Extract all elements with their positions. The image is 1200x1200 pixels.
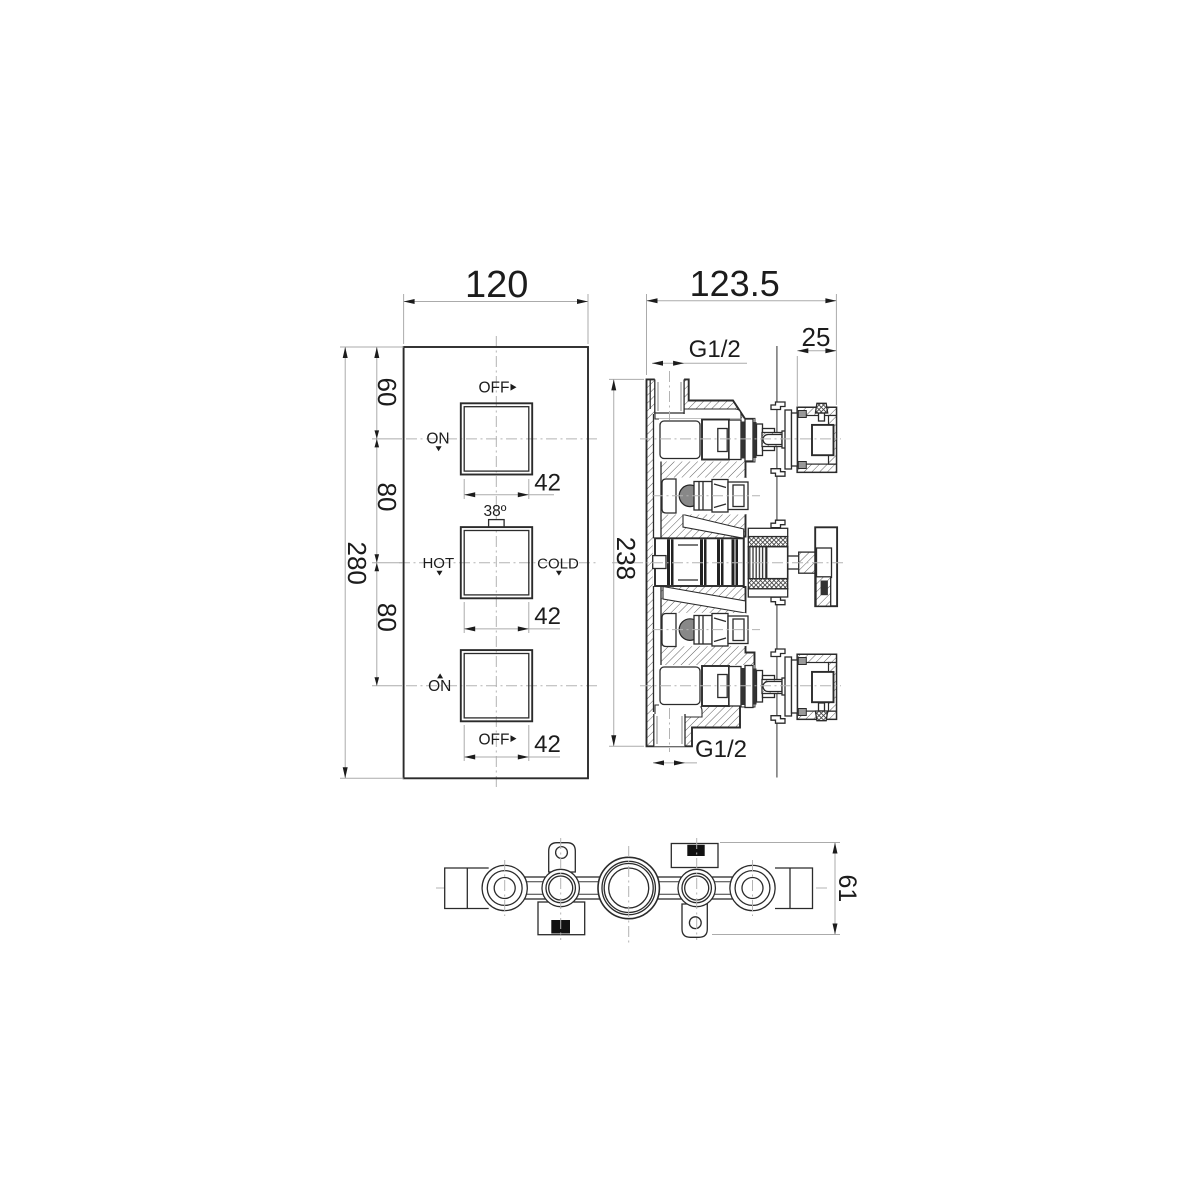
svg-text:42: 42 — [534, 731, 561, 758]
svg-text:38º: 38º — [484, 503, 507, 520]
svg-text:120: 120 — [465, 264, 528, 306]
svg-text:123.5: 123.5 — [690, 263, 780, 304]
svg-text:OFF: OFF — [479, 380, 510, 397]
svg-text:COLD: COLD — [537, 555, 579, 572]
svg-text:G1/2: G1/2 — [695, 736, 747, 763]
svg-text:42: 42 — [534, 469, 561, 496]
svg-text:ON: ON — [426, 431, 449, 448]
svg-text:ON: ON — [428, 678, 451, 695]
svg-text:61: 61 — [833, 874, 861, 902]
svg-text:42: 42 — [534, 603, 561, 630]
svg-text:60: 60 — [372, 378, 402, 407]
svg-text:HOT: HOT — [422, 555, 454, 572]
svg-text:25: 25 — [802, 322, 831, 352]
svg-text:G1/2: G1/2 — [689, 336, 741, 363]
svg-text:238: 238 — [611, 537, 641, 580]
svg-text:80: 80 — [372, 483, 402, 512]
svg-text:OFF: OFF — [479, 731, 510, 748]
svg-text:280: 280 — [342, 542, 372, 585]
svg-text:80: 80 — [372, 603, 402, 632]
